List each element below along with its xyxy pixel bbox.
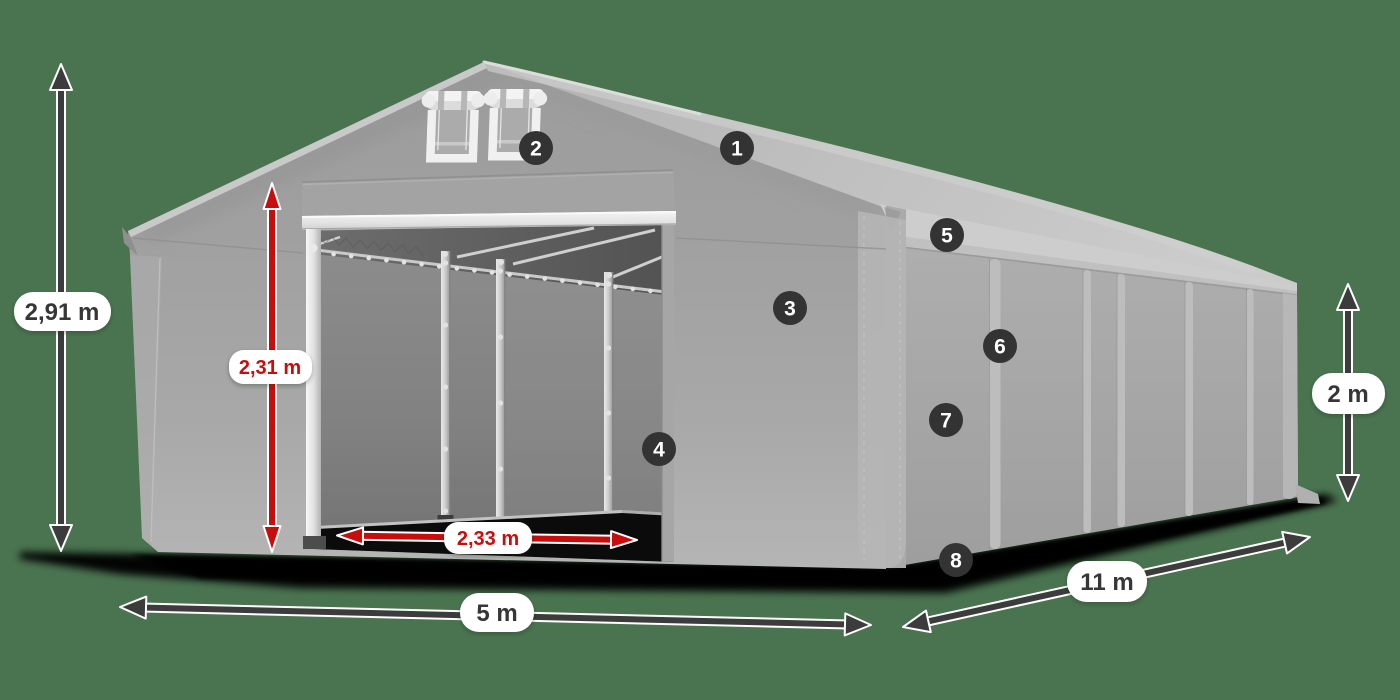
svg-text:2: 2 [530, 138, 542, 161]
svg-text:2,31 m: 2,31 m [239, 357, 301, 379]
svg-text:4: 4 [653, 439, 665, 462]
svg-text:3: 3 [784, 298, 796, 321]
svg-text:2,33 m: 2,33 m [457, 528, 519, 550]
svg-text:2,91 m: 2,91 m [25, 299, 100, 326]
svg-text:2 m: 2 m [1327, 381, 1368, 408]
svg-text:5: 5 [941, 225, 953, 248]
svg-text:6: 6 [994, 336, 1006, 359]
svg-text:7: 7 [940, 410, 952, 433]
svg-text:8: 8 [950, 550, 962, 573]
svg-text:1: 1 [731, 138, 743, 161]
svg-text:11 m: 11 m [1080, 569, 1133, 596]
svg-text:5 m: 5 m [476, 600, 517, 627]
